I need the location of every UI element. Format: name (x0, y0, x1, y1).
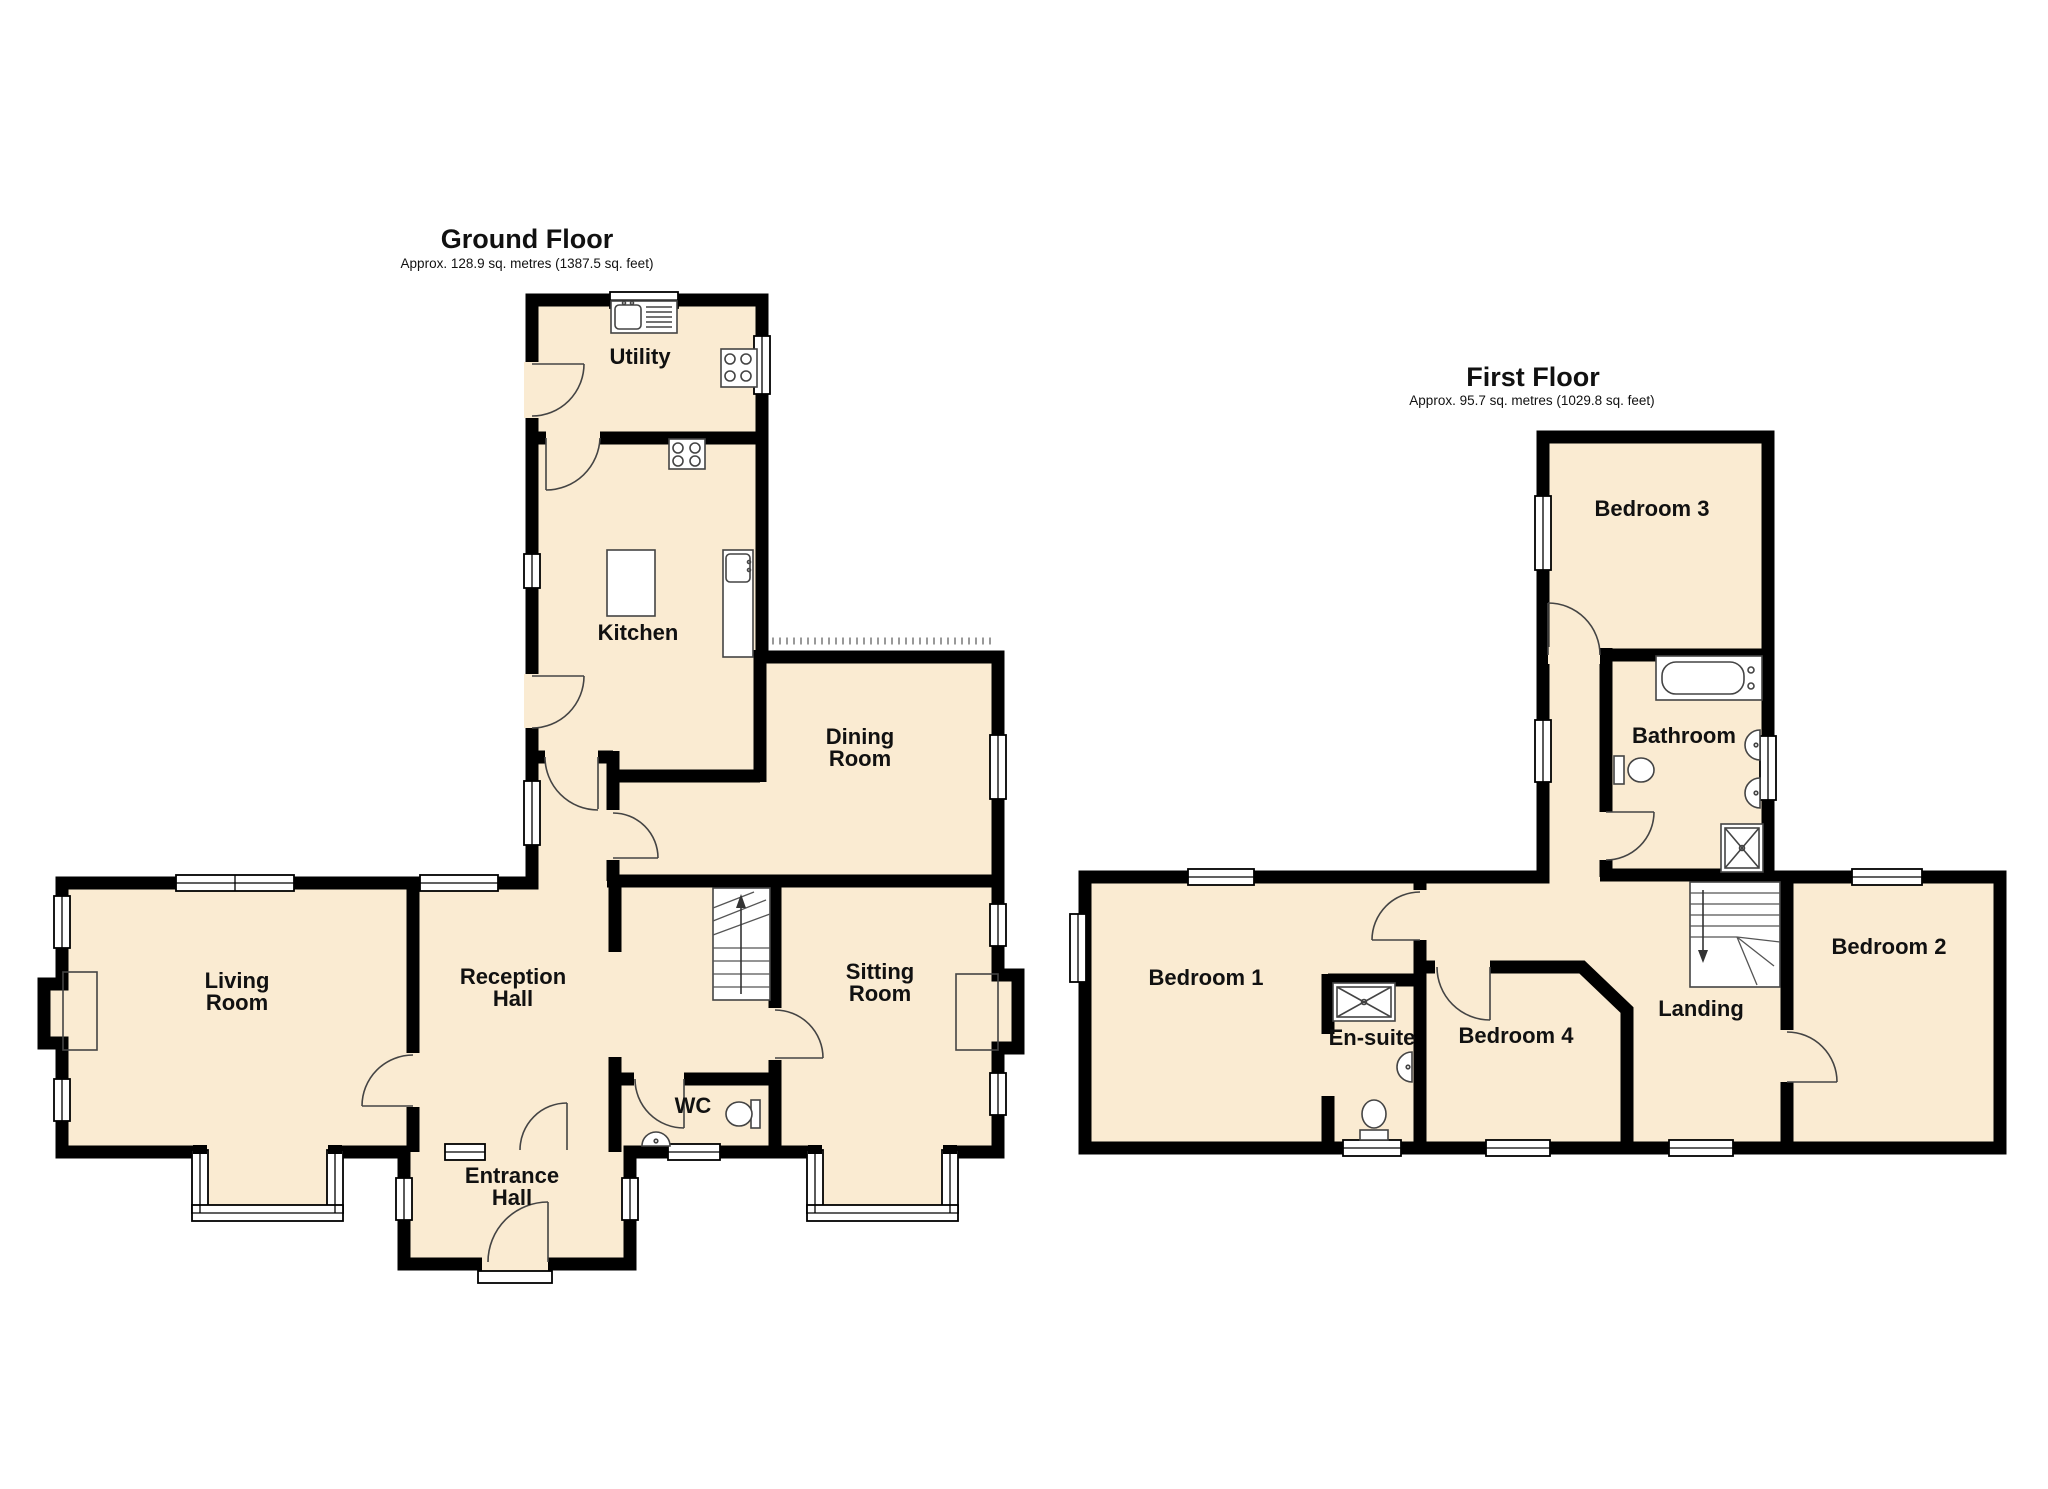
first-floor-area-note: Approx. 95.7 sq. metres (1029.8 sq. feet… (1409, 393, 1654, 408)
room-label-bedroom2: Bedroom 2 (1832, 934, 1947, 959)
window-glyph (420, 875, 498, 891)
window-glyph (1669, 1140, 1733, 1156)
window-glyph (668, 1144, 720, 1160)
island-counter (607, 550, 655, 616)
first-floor-plan: First Floor Approx. 95.7 sq. metres (102… (1070, 362, 2000, 1156)
window-glyph (1852, 869, 1922, 885)
toilet-icon (1360, 1100, 1388, 1140)
front-door-step (478, 1271, 552, 1283)
ground-floor-title: Ground Floor (441, 224, 614, 254)
ground-floor-area-note: Approx. 128.9 sq. metres (1387.5 sq. fee… (401, 256, 654, 271)
shower-icon (1333, 983, 1395, 1021)
window-glyph (176, 875, 294, 891)
kitchen-counter-sink-icon (723, 550, 753, 657)
room-label-landing: Landing (1658, 996, 1744, 1021)
floorplan-canvas: Ground Floor Approx. 128.9 sq. metres (1… (0, 0, 2048, 1489)
hob-icon (721, 349, 757, 387)
room-label-reception: Hall (493, 986, 533, 1011)
window-glyph (1535, 496, 1551, 570)
bath-icon (1656, 656, 1762, 700)
room-label-entrance: Hall (492, 1185, 532, 1210)
window-glyph (1486, 1140, 1550, 1156)
window-glyph (1535, 720, 1551, 782)
room-label-utility: Utility (609, 344, 671, 369)
window-glyph (54, 1079, 70, 1121)
window-glyph (1760, 736, 1776, 800)
hob-icon (669, 439, 705, 469)
stairs-up-icon (713, 888, 770, 1000)
shower-icon (1721, 824, 1763, 872)
window-glyph (54, 896, 70, 948)
toilet-icon (726, 1100, 760, 1128)
window-glyph (396, 1178, 412, 1220)
room-label-bathroom: Bathroom (1632, 723, 1736, 748)
sink-drainer-icon (611, 301, 677, 333)
window-glyph (524, 554, 540, 588)
window-glyph (990, 904, 1006, 946)
room-label-ensuite: En-suite (1329, 1025, 1416, 1050)
room-label-sitting: Room (849, 981, 911, 1006)
room-label-bedroom4: Bedroom 4 (1459, 1023, 1575, 1048)
room-label-wc: WC (675, 1093, 712, 1118)
ground-floor-plan: Ground Floor Approx. 128.9 sq. metres (1… (44, 224, 1018, 1283)
first-floor-title: First Floor (1466, 362, 1600, 392)
room-label-dining: Room (829, 746, 891, 771)
floorplan-page: Ground Floor Approx. 128.9 sq. metres (1… (0, 0, 2048, 1489)
window-glyph (990, 735, 1006, 799)
window-glyph (1070, 914, 1086, 982)
room-label-living: Room (206, 990, 268, 1015)
toilet-icon (1614, 756, 1654, 784)
window-glyph (1343, 1140, 1401, 1156)
room-label-bedroom3: Bedroom 3 (1595, 496, 1710, 521)
room-label-kitchen: Kitchen (598, 620, 679, 645)
window-glyph (990, 1073, 1006, 1115)
room-label-bedroom1: Bedroom 1 (1149, 965, 1264, 990)
window-glyph (524, 781, 540, 845)
window-glyph (1188, 869, 1254, 885)
stairs-down-icon (1690, 882, 1780, 987)
window-glyph (445, 1144, 485, 1160)
window-glyph (622, 1178, 638, 1220)
